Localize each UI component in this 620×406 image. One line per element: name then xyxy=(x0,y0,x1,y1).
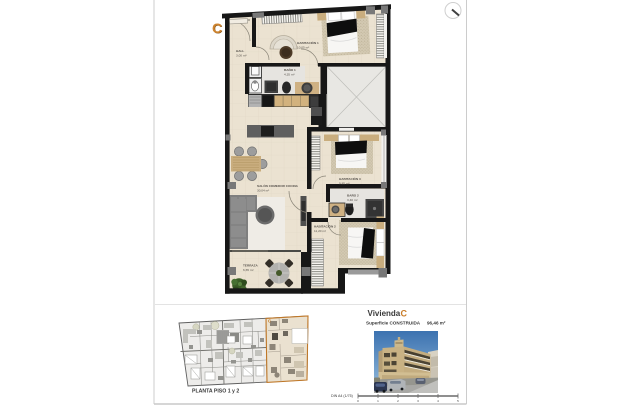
svg-text:HABITACIÓN 2: HABITACIÓN 2 xyxy=(314,224,336,229)
svg-text:BAÑO 2: BAÑO 2 xyxy=(347,193,359,198)
svg-text:3,00 m²: 3,00 m² xyxy=(236,53,247,57)
svg-text:96,46 m²: 96,46 m² xyxy=(427,321,446,326)
svg-text:HABITACIÓN 1: HABITACIÓN 1 xyxy=(297,40,319,45)
svg-text:HALL: HALL xyxy=(236,49,244,53)
svg-text:11,20 m²: 11,20 m² xyxy=(314,229,326,233)
svg-text:9,85 m²: 9,85 m² xyxy=(339,181,350,185)
svg-text:4,35 m²: 4,35 m² xyxy=(284,72,295,76)
svg-text:TERRAZA: TERRAZA xyxy=(243,264,259,268)
svg-text:30,04 m²: 30,04 m² xyxy=(257,188,269,192)
svg-text:HABITACIÓN 3: HABITACIÓN 3 xyxy=(339,176,361,181)
svg-text:Superficie CONSTRUIDA: Superficie CONSTRUIDA xyxy=(366,321,421,326)
svg-text:3,40 m²: 3,40 m² xyxy=(347,198,358,202)
svg-text:6,65 m²: 6,65 m² xyxy=(243,268,254,272)
svg-text:PLANTA PISO 1 y 2: PLANTA PISO 1 y 2 xyxy=(192,389,239,395)
svg-text:C: C xyxy=(212,20,222,36)
svg-text:DIN A4 (1/75): DIN A4 (1/75) xyxy=(331,394,353,398)
svg-text:SALÓN COMEDOR COCINA: SALÓN COMEDOR COCINA xyxy=(257,183,299,188)
svg-text:BAÑO 1: BAÑO 1 xyxy=(284,67,296,72)
svg-text:C: C xyxy=(401,309,408,319)
svg-text:10,05 m²: 10,05 m² xyxy=(297,45,309,49)
svg-text:Vivienda: Vivienda xyxy=(368,309,401,318)
